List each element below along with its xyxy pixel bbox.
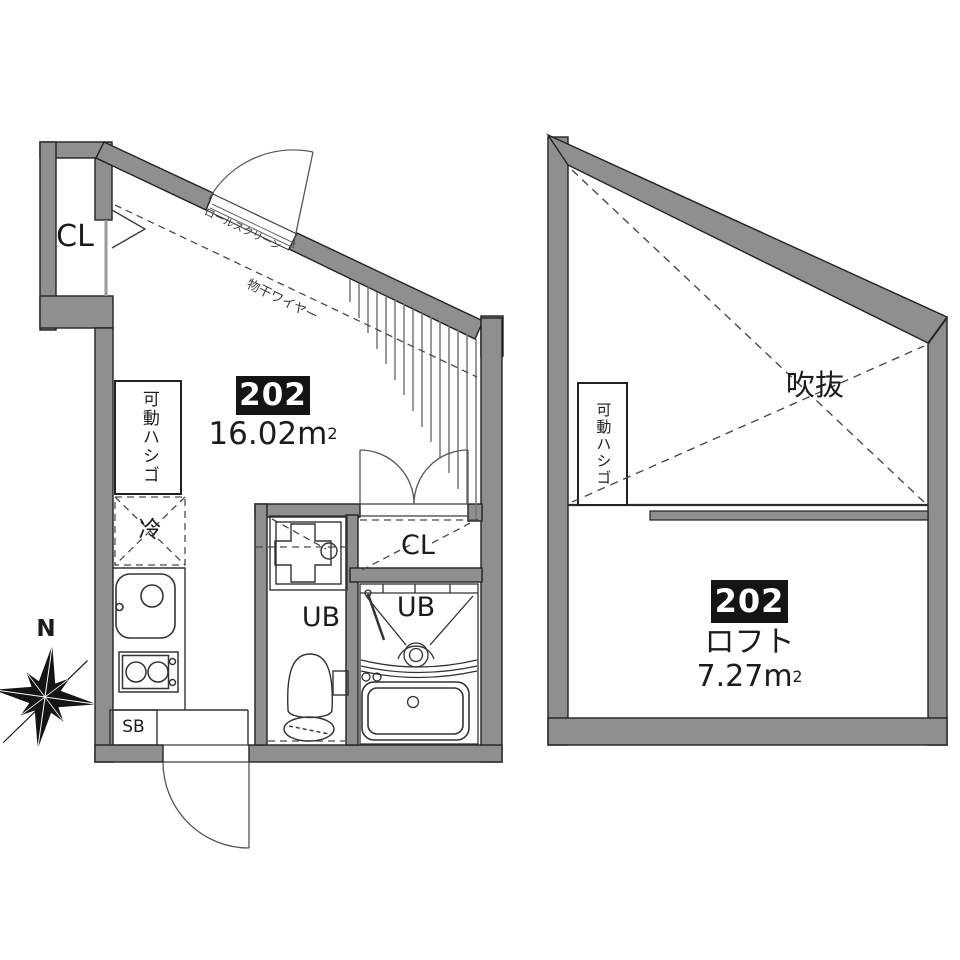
closet-double-door: [360, 450, 468, 504]
area-label-main: 16.02m2: [202, 418, 344, 451]
area-sup-main: 2: [327, 426, 337, 443]
main-plan-walls: [40, 142, 503, 762]
area-label-loft: 7.27m2: [686, 661, 813, 693]
washing-machine-pan: [270, 516, 347, 590]
refrigerator-label: 冷: [115, 500, 185, 560]
void-label: 吹抜: [765, 370, 865, 400]
area-unit-loft: m: [763, 661, 792, 693]
loft-room-label: ロフト: [686, 627, 813, 659]
area-unit-main: m: [297, 418, 327, 451]
movable-ladder-label-loft: 可動ハシゴ: [578, 383, 627, 505]
loft-floor-edge: [568, 505, 928, 520]
compass-north-label: N: [30, 617, 62, 641]
area-value-main: 16.02: [208, 418, 297, 451]
unit-number-badge-loft: 202: [711, 580, 788, 623]
unit-bath-toilet-label: UB: [295, 604, 347, 632]
area-sup-loft: 2: [793, 669, 803, 685]
compass-icon: [0, 641, 101, 755]
unit-number-badge-main: 202: [236, 376, 310, 415]
shoe-box-label: SB: [110, 711, 157, 744]
entrance-door-arc: [163, 762, 249, 848]
unit-bath-bathroom-label: UB: [388, 594, 444, 622]
kitchen-sink: [116, 574, 175, 638]
closet-middle-label: CL: [392, 532, 444, 560]
stove: [119, 652, 178, 692]
closet-bifold-symbol: [106, 210, 145, 296]
toilet: [284, 654, 348, 741]
movable-ladder-label-main: 可動ハシゴ: [115, 381, 181, 494]
area-value-loft: 7.27: [697, 661, 764, 693]
shower-bar: [368, 594, 384, 640]
opening-lines: [163, 194, 468, 762]
bathtub: [362, 682, 469, 740]
closet-upper-label: CL: [52, 221, 98, 253]
floor-plan: CL ロールスクリーン 物干ワイヤー 202 16.02m2 可動ハシゴ 冷 U…: [0, 0, 960, 960]
